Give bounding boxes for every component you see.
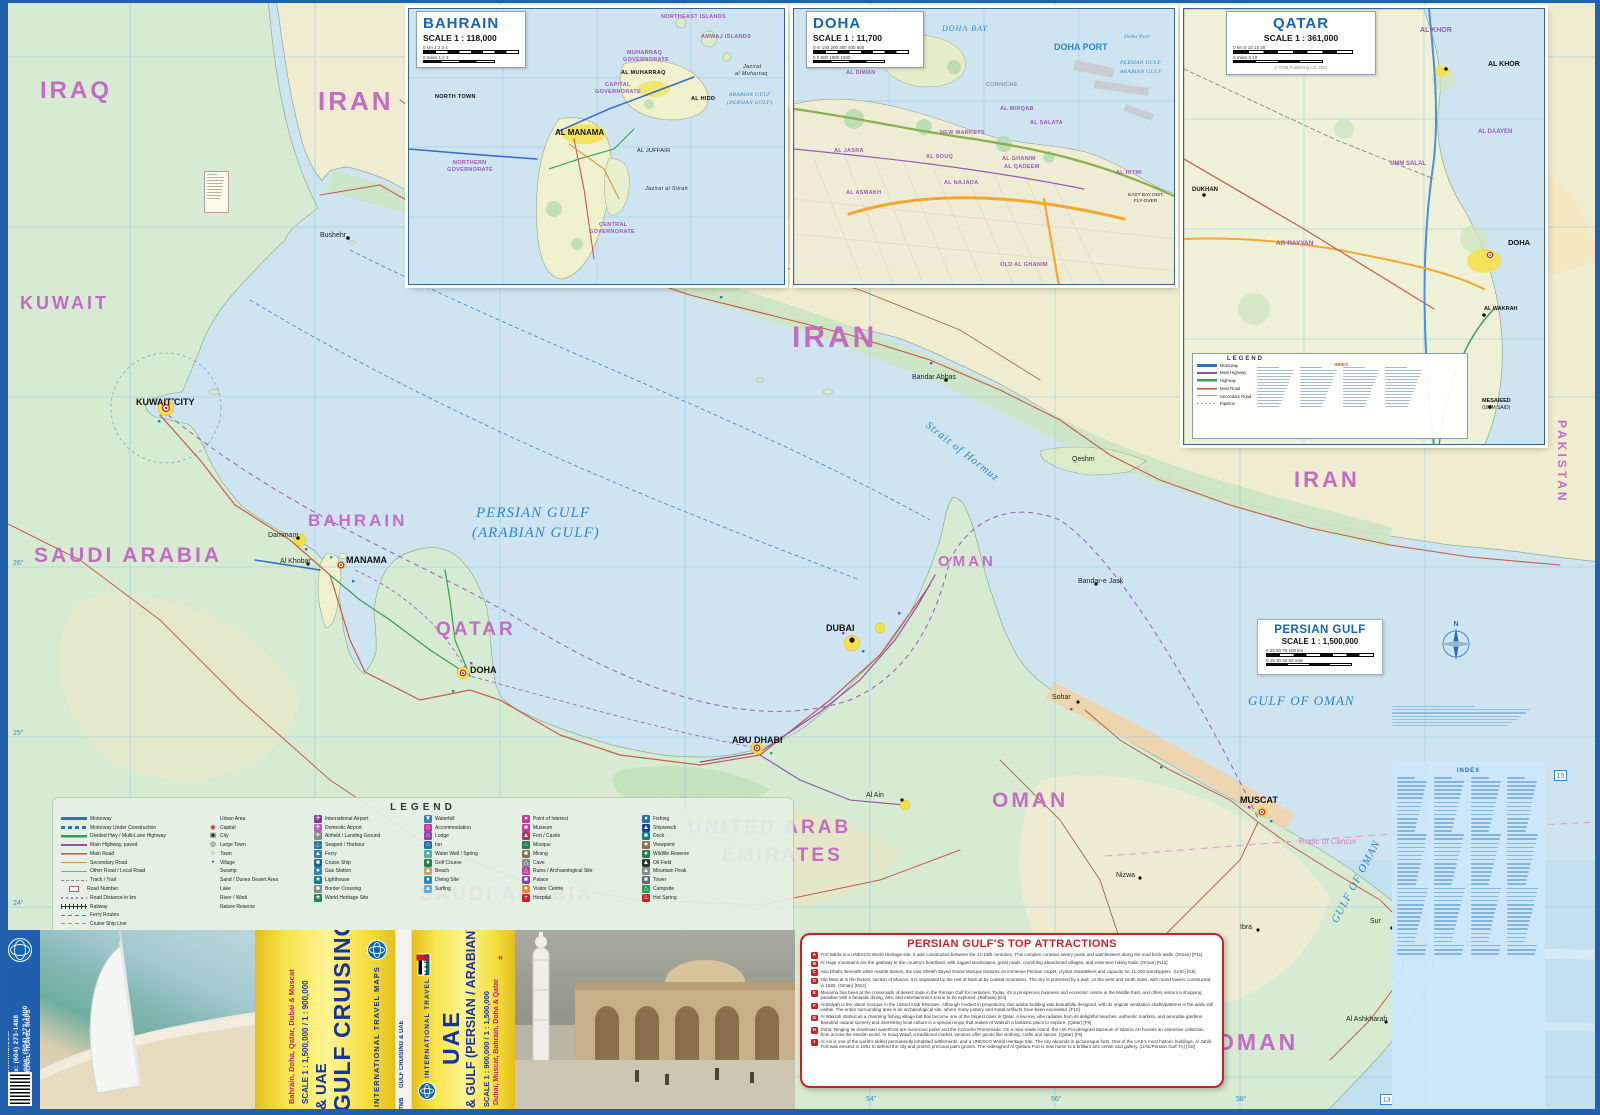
- legend-item: Lake: [209, 885, 304, 893]
- index-column: [1507, 777, 1540, 957]
- legend-label: Road Number: [87, 886, 118, 892]
- map-label: (UMM SAID): [1482, 406, 1510, 411]
- legend-item: ⚓ Seaport / Harbour: [314, 841, 414, 849]
- legend-label: Urban Area: [220, 816, 245, 822]
- index-column: [1397, 777, 1430, 957]
- legend-symbol: ■: [642, 876, 650, 884]
- map-label: ARABIAN GULF: [1120, 70, 1162, 76]
- map-label: GOVERNORATE: [623, 58, 669, 64]
- scale-bar: [813, 60, 885, 64]
- index-column: [1257, 367, 1297, 409]
- spine-text: GULF CRUISING & UAE: [399, 958, 405, 1088]
- legend-line-swatch: [61, 877, 87, 884]
- attraction-letter-chip: H: [811, 1027, 818, 1034]
- legend-label: Beach: [435, 868, 449, 874]
- map-label: NORTHERN: [453, 161, 487, 167]
- attraction-entry: G Al Wakrah started as a charming fishin…: [811, 1014, 1213, 1025]
- legend-label: Ruins / Archaeological Site: [533, 868, 592, 874]
- attraction-letter-chip: C: [811, 969, 818, 976]
- attractions-list: A Fort Bahla is a UNESCO World Heritage …: [811, 952, 1213, 1050]
- map-label: AL HITMI: [1116, 171, 1142, 177]
- legend-symbol: ■: [522, 824, 530, 832]
- legend-symbol: ★: [642, 841, 650, 849]
- legend-label: Ferry: [325, 851, 337, 857]
- attraction-letter-chip: I: [811, 1039, 818, 1046]
- map-label: AL DIWAN: [846, 71, 876, 77]
- map-label: Doha Port: [1124, 35, 1150, 41]
- legend-label: Secondary Road: [1220, 394, 1251, 399]
- scale-box-ratio: SCALE 1 : 1,500,000: [1266, 637, 1374, 646]
- legend-item: Main Highway: [1197, 370, 1251, 377]
- spine: GULF CRUISING & UAE ITMB: [395, 930, 412, 1115]
- cover-panel-gulf-cruising: Bahrain, Doha, Qatar, Dubai & Muscat SCA…: [255, 930, 395, 1115]
- legend-symbol: ✈: [314, 832, 322, 840]
- legend-item: △ Campsite: [642, 885, 732, 893]
- doha-inset-title: DOHA SCALE 1 : 11,700 0 m 100 200 300 40…: [806, 11, 924, 68]
- legend-label: Divided Hwy / Multi-Lane Highway: [90, 833, 166, 839]
- scale-bar: [423, 60, 495, 64]
- map-label: ARABIAN GULF: [729, 93, 771, 99]
- legend-item: ■ Tower: [642, 876, 732, 884]
- map-label: CORNICHE: [986, 83, 1018, 89]
- qatar-inset-index: INDEX: [1257, 362, 1425, 409]
- legend-item: Other Road / Local Road: [61, 868, 199, 876]
- legend-label: Village: [220, 860, 235, 866]
- legend-line-swatch: [61, 868, 87, 875]
- attraction-text: Manama has been at the crossroads of des…: [821, 990, 1214, 1001]
- legend-label: Town: [220, 851, 232, 857]
- legend-label: Viewpoint: [653, 842, 675, 848]
- frame-top: [0, 0, 1600, 3]
- legend-item: ▲ Beach: [424, 868, 512, 876]
- legend-item: Pipeline: [1197, 400, 1251, 407]
- legend-symbol: ⌂: [522, 841, 530, 849]
- legend-item: ▼ Waterfall: [424, 815, 512, 823]
- legend-label: Track / Trail: [90, 877, 116, 883]
- legend-column-a: Urban Area ◉ Capital ▣ City ◎ Large Town…: [209, 815, 304, 946]
- legend-symbol: ●: [424, 850, 432, 858]
- legend-column-b: ✈ International Airport ✈ Domestic Airpo…: [314, 815, 414, 946]
- legend-item: Ferry Routes: [61, 912, 199, 920]
- map-label: AL WAKRAH: [1484, 307, 1518, 313]
- attraction-text: Doha: Ringing its downtown waterfront ar…: [821, 1027, 1214, 1038]
- legend-item: ⌂ Lodge: [424, 833, 512, 841]
- legend-label: Mining: [533, 851, 548, 857]
- map-label: 15: [1554, 770, 1567, 781]
- map-label: AL MUHARRAQ: [621, 71, 666, 77]
- legend-item: Swamp: [209, 868, 304, 876]
- cover-photo-grand-mosque: [515, 930, 795, 1115]
- legend-line-swatch: [61, 842, 87, 849]
- cover-title: GULF CRUISING: [329, 934, 356, 1112]
- map-label: AL HIDD: [691, 97, 715, 103]
- map-label: AL QADEEM: [1004, 165, 1040, 171]
- legend-symbol: ✈: [314, 815, 322, 823]
- legend-label: Main Highway, paved: [90, 842, 137, 848]
- legend-item: Main Road: [61, 850, 199, 858]
- legend-label: Mosque: [533, 842, 551, 848]
- legend-item: ◎ Large Town: [209, 841, 304, 849]
- legend-item: Sand / Dunes Desert Area: [209, 876, 304, 884]
- index-column: [1385, 367, 1425, 409]
- legend-item: ▲ Fort / Castle: [522, 833, 632, 841]
- map-label: AL JUFFAIR: [637, 149, 670, 155]
- legend-label: Cruise Ship: [325, 860, 351, 866]
- frame-right: [1595, 0, 1600, 1115]
- legend-item: ★ World Heritage Site: [314, 894, 414, 902]
- legend-label: Waterfall: [435, 816, 455, 822]
- legend-column-c: ▼ Waterfall ⌂ Accommodation ⌂ Lodge ⌂ In…: [424, 815, 512, 946]
- index-column: [1343, 367, 1383, 409]
- legend-line-swatch: [61, 921, 87, 928]
- legend-item: ✈ International Airport: [314, 815, 414, 823]
- legend-symbol: ▲: [424, 867, 432, 875]
- legend-item: • Village: [209, 859, 304, 867]
- attraction-entry: C Abu Dhabi: Beneath white marble domes,…: [811, 969, 1213, 976]
- map-label: (PERSIAN GULF): [727, 101, 772, 107]
- inset-copyright: © ITMB Publishing Ltd. 2021: [1233, 65, 1369, 70]
- index-column: [1434, 777, 1467, 957]
- legend-label: City: [220, 833, 229, 839]
- legend-label: Domestic Airport: [325, 825, 362, 831]
- legend-item: Cruise Ship Line: [61, 920, 199, 928]
- legend-label: Road Distance in km: [90, 895, 136, 901]
- map-label: DOHA: [1508, 239, 1530, 247]
- cover-brand: INTERNATIONAL TRAVEL MAPS: [372, 972, 381, 1107]
- legend-symbol: ■: [314, 885, 322, 893]
- legend-label: Oil Field: [653, 860, 671, 866]
- inset-doha: DOHA SCALE 1 : 11,700 0 m 100 200 300 40…: [793, 8, 1175, 285]
- legend-label: Lodge: [435, 833, 449, 839]
- legend-symbol: [209, 885, 217, 893]
- map-label: PERSIAN GULF: [1120, 61, 1161, 67]
- map-label: AL DAAYEN: [1478, 129, 1512, 135]
- legend-line-swatch: [61, 912, 87, 919]
- legend-item: Main Road: [1197, 385, 1251, 392]
- legend-symbol: ○: [209, 850, 217, 858]
- legend-item: Motorway: [1197, 362, 1251, 369]
- map-label: al Muharraq: [735, 72, 768, 78]
- legend-item: ● Water Well / Spring: [424, 850, 512, 858]
- legend-item: Road Number: [61, 885, 199, 893]
- map-label: GOVERNORATE: [589, 230, 635, 236]
- legend-swatch: [1197, 370, 1217, 376]
- frame-left: [0, 0, 8, 1115]
- legend-symbol: ▲: [522, 832, 530, 840]
- legend-label: Tower: [653, 877, 666, 883]
- legend-item: Road Distance in km: [61, 894, 199, 902]
- barcode: [8, 1072, 32, 1106]
- legend-item: ● Visitor Centre: [522, 885, 632, 893]
- legend-label: Fort / Castle: [533, 833, 560, 839]
- map-label: GOVERNORATE: [447, 168, 493, 174]
- map-label: CENTRAL: [599, 223, 627, 229]
- legend-symbol: [209, 815, 217, 823]
- legend-line-swatch: [61, 859, 87, 866]
- legend-symbol: ♦: [424, 876, 432, 884]
- legend-label: Cave: [533, 860, 545, 866]
- map-label: AL JASRA: [834, 149, 864, 155]
- cover-panel-uae: INTERNATIONAL TRAVEL MAPS UAE & GULF (PE…: [412, 930, 515, 1115]
- legend-label: Main Road: [90, 851, 114, 857]
- map-label: GOVERNORATE: [595, 90, 641, 96]
- map-label: FLY-OVER: [1134, 199, 1157, 204]
- map-label: CAPITAL: [605, 83, 631, 89]
- inset-scale-text: SCALE 1 : 118,000: [423, 33, 519, 43]
- legend-item: ■ Museum: [522, 824, 632, 832]
- legend-item: ▲ Mountain Peak: [642, 868, 732, 876]
- legend-label: Capital: [220, 825, 236, 831]
- qatar-inset-legend: LEGEND Motorway Main Highway Highway: [1192, 353, 1468, 439]
- legend-symbol: ●: [314, 867, 322, 875]
- legend-label: Pipeline: [1220, 401, 1235, 406]
- legend-column-d: ● Point of Interest ■ Museum ▲ Fort / Ca…: [522, 815, 632, 946]
- legend-item: + Hospital: [522, 894, 632, 902]
- legend-label: Sand / Dunes Desert Area: [220, 877, 278, 883]
- legend-symbol: ▼: [424, 815, 432, 823]
- legend-swatch: [1197, 362, 1217, 368]
- legend-symbol: ★: [314, 876, 322, 884]
- legend-symbol: △: [522, 859, 530, 867]
- attraction-letter-chip: E: [811, 990, 818, 997]
- attraction-letter-chip: G: [811, 1015, 818, 1022]
- attraction-text: Al Ain is one of the world's oldest perm…: [821, 1039, 1214, 1050]
- map-label: NEW MARKETS: [940, 131, 985, 137]
- cover-photo-burj-al-arab: [40, 930, 255, 1115]
- legend-label: Gas Station: [325, 868, 351, 874]
- legend-label: Fishing: [653, 816, 669, 822]
- legend-item: Highway: [1197, 377, 1251, 384]
- legend-item: Nature Reserve: [209, 903, 304, 911]
- map-label: UMM SALAL: [1390, 161, 1426, 167]
- map-label: Jazirat al Sitrah: [645, 187, 688, 193]
- cover-scale: SCALE 1 : 1,500,000 / 1 : 900,000: [301, 942, 310, 1104]
- legend-item: ▲ Ferry: [314, 850, 414, 858]
- attraction-letter-chip: A: [811, 952, 818, 959]
- legend-label: Point of Interest: [533, 816, 568, 822]
- scale-bar: [1266, 663, 1352, 667]
- legend-symbol: ■: [522, 876, 530, 884]
- legend-label: Secondary Road: [90, 860, 127, 866]
- legend-symbol: ■: [314, 859, 322, 867]
- legend-symbol: ▲: [424, 885, 432, 893]
- legend-label: Motorway Under Construction: [90, 825, 156, 831]
- attraction-entry: F Al-Bidyah is the oldest mosque in the …: [811, 1002, 1213, 1013]
- legend-symbol: [209, 867, 217, 875]
- legend-item: ▣ City: [209, 833, 304, 841]
- attraction-entry: H Doha: Ringing its downtown waterfront …: [811, 1027, 1213, 1038]
- itmb-logo-icon: [8, 938, 32, 962]
- legend-item: River / Wadi: [209, 894, 304, 902]
- legend-label: Golf Course: [435, 860, 462, 866]
- legend-title: LEGEND: [61, 802, 785, 813]
- attraction-entry: A Fort Bahla is a UNESCO World Heritage …: [811, 952, 1213, 959]
- map-label: Jazirat: [743, 65, 761, 71]
- legend-item: ■ Mining: [522, 850, 632, 858]
- legend-symbol: ✈: [314, 824, 322, 832]
- legend-line-swatch: [61, 850, 87, 857]
- legend-label: Water Well / Spring: [435, 851, 478, 857]
- legend-item: △ Ruins / Archaeological Site: [522, 868, 632, 876]
- index-title: INDEX: [1397, 768, 1540, 774]
- chevron-left-icon: «: [498, 952, 503, 962]
- legend-item: ⌂ Inn: [424, 841, 512, 849]
- legend-symbol: ▣: [209, 832, 217, 840]
- legend-symbol: ⚓: [314, 841, 322, 849]
- attraction-letter-chip: B: [811, 961, 818, 968]
- map-label: MUHARRAQ: [627, 51, 662, 57]
- legend-item: ✈ Domestic Airport: [314, 824, 414, 832]
- scale-bar: [423, 50, 519, 54]
- legend-item: Divided Hwy / Multi-Lane Highway: [61, 833, 199, 841]
- legend-symbol: ★: [314, 894, 322, 902]
- inset-scale-text: SCALE 1 : 11,700: [813, 33, 917, 43]
- legend-label: Mountain Peak: [653, 868, 686, 874]
- map-label: AL NAJADA: [944, 181, 978, 187]
- legend-item: ⌂ Accommodation: [424, 824, 512, 832]
- legend-swatch: [1197, 393, 1217, 399]
- legend-label: Swamp: [220, 868, 237, 874]
- legend-item: ■ Cruise Ship: [314, 859, 414, 867]
- legend-swatch: [1197, 385, 1217, 391]
- legend-line-swatch: [69, 886, 79, 892]
- legend-item: ● Point of Interest: [522, 815, 632, 823]
- legend-symbol: [209, 903, 217, 911]
- legend-item: ♦ Fishing: [642, 815, 732, 823]
- map-label: AR RAYYAN: [1276, 241, 1313, 248]
- inset-bahrain: BAHRAIN SCALE 1 : 118,000 0 km 1 2 3 4 0…: [408, 8, 785, 285]
- frame-bottom: [0, 1109, 1600, 1115]
- legend-item: ★ Viewpoint: [642, 841, 732, 849]
- legend-item: ♦ Diving Site: [424, 876, 512, 884]
- legend-label: Other Road / Local Road: [90, 868, 145, 874]
- scale-bar: [813, 50, 909, 54]
- legend-label: Highway: [1220, 378, 1236, 383]
- itmb-fax: Fax: (604) 273-1488: [13, 970, 20, 1080]
- cover-subtitle: & UAE: [313, 990, 330, 1110]
- bahrain-inset-title: BAHRAIN SCALE 1 : 118,000 0 km 1 2 3 4 0…: [416, 11, 526, 68]
- map-label: AL ASMAKH: [846, 191, 881, 197]
- legend-label: Seaport / Harbour: [325, 842, 365, 848]
- inset-title-text: BAHRAIN: [423, 15, 519, 32]
- itmb-logo-icon: [367, 940, 387, 960]
- legend-line-swatch: [61, 833, 87, 840]
- attractions-title: PERSIAN GULF'S TOP ATTRACTIONS: [811, 938, 1213, 950]
- legend-item: ■ Border Crossing: [314, 885, 414, 893]
- legend-item: Urban Area: [209, 815, 304, 823]
- legend-label: Motorway: [90, 816, 112, 822]
- attraction-text: Fort Bahla is a UNESCO World Heritage si…: [821, 952, 1203, 959]
- legend-item: ⌂ Mosque: [522, 841, 632, 849]
- legend-label: Inn: [435, 842, 442, 848]
- legend-symbol: ■: [642, 832, 650, 840]
- legend-label: International Airport: [325, 816, 368, 822]
- map-label: AL GHANIM: [1002, 157, 1036, 163]
- scale-box-title: PERSIAN GULF: [1266, 624, 1374, 636]
- legend-label: Nature Reserve: [220, 904, 255, 910]
- attraction-letter-chip: D: [811, 978, 818, 985]
- main-legend: LEGEND Motorway Motorway Under Construct…: [52, 797, 794, 935]
- map-label: AL SOUQ: [926, 155, 953, 161]
- legend-swatch: [1197, 401, 1217, 407]
- legend-label: Airfield / Landing Ground: [325, 833, 380, 839]
- itmb-logo-icon: [418, 1082, 436, 1100]
- legend-item: ◉ Capital: [209, 824, 304, 832]
- attraction-text: Old Muscat is the historic section of Mu…: [821, 977, 1214, 988]
- map-label: AL KHOR: [1488, 61, 1520, 68]
- legend-label: Ferry Routes: [90, 912, 119, 918]
- legend-symbol: ▲: [642, 824, 650, 832]
- map-label: EAST BAY DIST.: [1128, 193, 1164, 198]
- top-attractions-box: PERSIAN GULF'S TOP ATTRACTIONS A Fort Ba…: [800, 933, 1224, 1088]
- attraction-entry: E Manama has been at the crossroads of d…: [811, 990, 1213, 1001]
- inset-qatar: QATAR SCALE 1 : 361,000 0 km 5 10 15 20 …: [1183, 8, 1545, 445]
- legend-item: ▲ Shipwreck: [642, 824, 732, 832]
- legend-label: Cruise Ship Line: [90, 921, 127, 927]
- legend-line-swatch: [61, 815, 87, 822]
- legend-symbol: ♦: [642, 815, 650, 823]
- index-column: [1300, 367, 1340, 409]
- legend-label: Palace: [533, 877, 548, 883]
- legend-label: Shipwreck: [653, 825, 676, 831]
- attraction-text: Al Hajar mountains are the gateway to th…: [821, 960, 1168, 967]
- legend-item: Secondary Road: [1197, 393, 1251, 400]
- main-scale-box: PERSIAN GULF SCALE 1 : 1,500,000 0 25 50…: [1257, 619, 1383, 675]
- legend-label: Lighthouse: [325, 877, 349, 883]
- cover-title: UAE: [438, 985, 465, 1065]
- legend-label: Border Crossing: [325, 886, 361, 892]
- legend-label: Hot Spring: [653, 895, 677, 901]
- map-label: AMWAJ ISLANDS: [701, 35, 751, 41]
- legend-symbol: ♨: [642, 894, 650, 902]
- legend-label: Large Town: [220, 842, 246, 848]
- legend-label: Surfing: [435, 886, 451, 892]
- legend-item: ♨ Hot Spring: [642, 894, 732, 902]
- legend-label: Hospital: [533, 895, 551, 901]
- index-panel: INDEX: [1392, 762, 1545, 1110]
- legend-label: Campsite: [653, 886, 674, 892]
- legend-item: ● Wildlife Reserve: [642, 850, 732, 858]
- map-label: NORTH TOWN: [435, 95, 476, 101]
- legend-symbol: ◉: [209, 824, 217, 832]
- legend-symbol: ⌂: [424, 824, 432, 832]
- inset-scale-text: SCALE 1 : 361,000: [1233, 33, 1369, 43]
- legend-lines-column: Motorway Motorway Under Construction Div…: [61, 815, 199, 946]
- legend-item: ♦ Golf Course: [424, 859, 512, 867]
- legend-swatch: [1197, 378, 1217, 384]
- legend-item: Track / Trail: [61, 876, 199, 884]
- legend-label: Museum: [533, 825, 552, 831]
- legend-symbol: ◎: [209, 841, 217, 849]
- legend-symbol: △: [642, 885, 650, 893]
- legend-item: Motorway: [61, 815, 199, 823]
- legend-symbol: ▲: [314, 850, 322, 858]
- attraction-entry: I Al Ain is one of the world's oldest pe…: [811, 1039, 1213, 1050]
- legend-label: Railway: [90, 904, 108, 910]
- legend-item: ★ Lighthouse: [314, 876, 414, 884]
- legend-line-swatch: [61, 824, 87, 831]
- map-label: AL MIRQAB: [1000, 107, 1034, 113]
- scale-bar: [1233, 50, 1353, 54]
- cover-brand: INTERNATIONAL TRAVEL MAPS: [424, 978, 431, 1078]
- legend-line-swatch: [61, 894, 87, 901]
- attraction-entry: B Al Hajar mountains are the gateway to …: [811, 960, 1213, 967]
- legend-symbol: ⌂: [424, 841, 432, 849]
- map-label: DOHA BAY: [942, 25, 988, 33]
- attraction-letter-chip: F: [811, 1003, 818, 1010]
- map-label: AL SALATA: [1030, 121, 1063, 127]
- legend-label: World Heritage Site: [325, 895, 368, 901]
